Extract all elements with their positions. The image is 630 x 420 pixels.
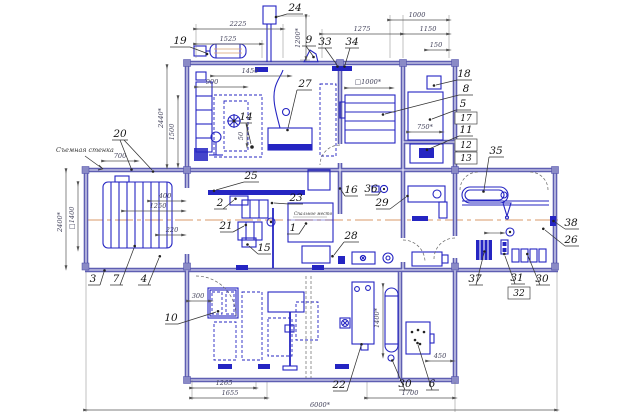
callout-23: 23 bbox=[288, 192, 303, 204]
callout-18: 18 bbox=[457, 68, 471, 80]
callout-1: 1 bbox=[290, 222, 297, 234]
sleeping-place-label: Спальное место bbox=[294, 212, 333, 217]
exhaust-stack-head bbox=[263, 6, 276, 24]
callout-14: 14 bbox=[239, 111, 252, 123]
callout-28: 28 bbox=[343, 230, 358, 242]
dim-50: 50 bbox=[237, 132, 245, 140]
callout-21: 21 bbox=[218, 220, 232, 232]
floor-plan-canvas: Спальное место bbox=[0, 0, 630, 420]
dim-1000: 1000 bbox=[409, 11, 426, 19]
callout-16: 16 bbox=[344, 184, 358, 196]
dim-sq1400: □1400 bbox=[68, 206, 76, 229]
hatched-box-28 bbox=[302, 246, 330, 263]
water-heater bbox=[439, 202, 447, 218]
dim-6000: 6000* bbox=[310, 401, 331, 409]
callout-11: 11 bbox=[459, 124, 472, 136]
dim-1450: 1450 bbox=[242, 67, 259, 75]
callout-5: 5 bbox=[460, 98, 467, 110]
dim-400: 400 bbox=[158, 192, 172, 200]
callout-9: 9 bbox=[306, 34, 313, 46]
cabinet bbox=[196, 82, 212, 152]
wall-vent-grille bbox=[332, 66, 352, 71]
callout-29: 29 bbox=[374, 197, 389, 209]
callout-15: 15 bbox=[257, 242, 271, 254]
callout-30: 30 bbox=[535, 273, 549, 285]
callout-6: 6 bbox=[429, 378, 436, 390]
dim-300: 300 bbox=[192, 292, 205, 300]
cabinet-low bbox=[412, 252, 442, 266]
dim-1265: 1265 bbox=[216, 379, 233, 387]
dim-sq1000: □1000* bbox=[355, 78, 382, 86]
callout-30b: 30 bbox=[398, 378, 412, 390]
drawer-unit-2 bbox=[238, 222, 262, 240]
middle-room3-interior bbox=[403, 186, 455, 266]
callout-37: 37 bbox=[468, 273, 482, 285]
dim-1500: 1500 bbox=[168, 124, 176, 141]
dim-1400: 1400* bbox=[373, 307, 381, 328]
callout-35: 35 bbox=[489, 145, 503, 157]
callout-10: 10 bbox=[164, 312, 178, 324]
callout-4: 4 bbox=[140, 273, 148, 285]
callout-12: 12 bbox=[460, 141, 472, 151]
callout-33: 33 bbox=[318, 36, 332, 48]
dim-700: 700 bbox=[114, 152, 127, 160]
callout-27: 27 bbox=[297, 78, 312, 90]
bench-29 bbox=[408, 186, 445, 202]
callout-34: 34 bbox=[345, 36, 358, 48]
callout-19: 19 bbox=[173, 35, 187, 47]
callout-26: 26 bbox=[563, 234, 578, 246]
dim-2225: 2225 bbox=[229, 20, 247, 28]
dim-150: 150 bbox=[430, 41, 443, 49]
callout-22: 22 bbox=[331, 379, 346, 391]
left-extension-interior bbox=[103, 176, 172, 248]
dimension-texts: 2225 1525 1200* 1000 1275 1150 150 2440*… bbox=[56, 11, 446, 409]
callout-38: 38 bbox=[564, 217, 578, 229]
dim-1150: 1150 bbox=[420, 25, 437, 33]
dim-1525: 1525 bbox=[220, 35, 237, 43]
callout-36: 36 bbox=[364, 183, 378, 195]
exhaust-muffler bbox=[210, 44, 246, 58]
callout-17: 17 bbox=[460, 114, 472, 124]
dim-1655: 1655 bbox=[222, 389, 239, 397]
unit-18 bbox=[427, 76, 441, 89]
callout-20: 20 bbox=[112, 128, 127, 140]
floor-drain bbox=[383, 253, 393, 263]
panel-6 bbox=[406, 322, 430, 354]
callout-24: 24 bbox=[287, 2, 301, 14]
callout-13: 13 bbox=[460, 154, 472, 164]
dim-2400: 2400* bbox=[56, 211, 64, 233]
top-module-interior bbox=[194, 70, 443, 165]
dim-450: 450 bbox=[433, 352, 447, 360]
unit-5 bbox=[408, 92, 443, 140]
drawer-unit bbox=[242, 200, 268, 218]
callout-7: 7 bbox=[113, 273, 120, 285]
callout-25: 25 bbox=[243, 170, 258, 182]
right-extension-interior bbox=[460, 172, 556, 262]
callout-2: 2 bbox=[216, 197, 224, 209]
removable-wall-note: Съемная стенка bbox=[56, 146, 114, 154]
callout-32: 32 bbox=[513, 289, 525, 299]
wardrobe-8 bbox=[345, 95, 395, 143]
callout-texts: 19 24 9 33 34 18 8 5 17 11 12 13 27 14 2… bbox=[56, 2, 578, 391]
dim-1200-roof: 1200* bbox=[294, 27, 302, 48]
dim-2440: 2440* bbox=[157, 107, 165, 129]
floor-plan-drawing: Спальное место bbox=[0, 0, 630, 420]
dim-220: 220 bbox=[165, 226, 179, 234]
dim-900: 900 bbox=[206, 78, 219, 86]
dim-1275: 1275 bbox=[354, 25, 371, 33]
callout-31: 31 bbox=[510, 272, 523, 284]
dim-750: 750* bbox=[417, 123, 434, 131]
callout-8: 8 bbox=[463, 83, 470, 95]
cylinder-30 bbox=[385, 288, 398, 352]
dim-1250: 1250 bbox=[150, 202, 167, 210]
point-14 bbox=[250, 145, 254, 149]
table-10 bbox=[208, 288, 238, 318]
callout-3: 3 bbox=[90, 273, 97, 285]
